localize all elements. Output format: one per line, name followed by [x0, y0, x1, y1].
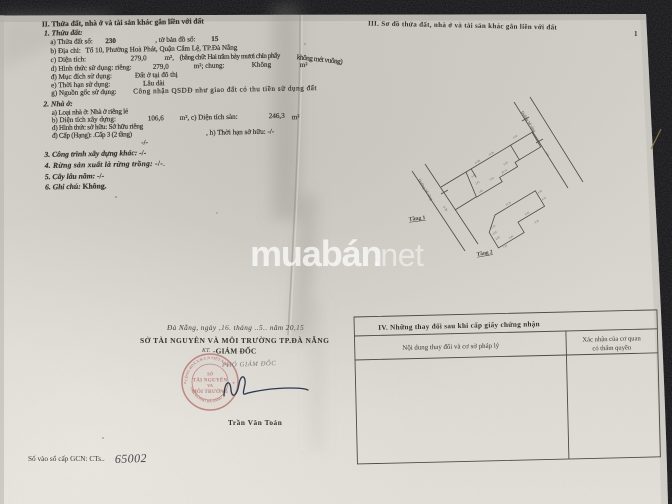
svg-text:-/-: -/-: [141, 138, 148, 146]
svg-text:1: 1: [634, 30, 638, 38]
svg-text:5. Cây lâu năm: -/-: 5. Cây lâu năm: -/-: [45, 171, 105, 181]
svg-text:SỞ: SỞ: [207, 372, 213, 377]
svg-text:Trần Văn Toán: Trần Văn Toán: [228, 418, 282, 427]
svg-text:Số vào sổ cấp GCN: CTs..: Số vào sổ cấp GCN: CTs..: [28, 454, 105, 463]
svg-text:MÔI TRƯỜNG: MÔI TRƯỜNG: [192, 389, 228, 395]
svg-text:6. Ghi chú: Không.: 6. Ghi chú: Không.: [45, 181, 107, 191]
svg-text:2. Nhà ở:: 2. Nhà ở:: [42, 99, 72, 109]
svg-text:Đà Nẵng, ngày ,16. tháng ..5..: Đà Nẵng, ngày ,16. tháng ..5.. năm 20,15: [166, 323, 304, 332]
svg-text:muabán: muabán: [250, 233, 381, 274]
svg-text:.net: .net: [372, 237, 424, 273]
svg-text:-GIÁM ĐỐC: -GIÁM ĐỐC: [213, 346, 256, 356]
svg-text:có thẩm quyền: có thẩm quyền: [592, 344, 632, 352]
svg-text:Xác nhận của cơ quan: Xác nhận của cơ quan: [582, 335, 641, 343]
svg-text:SỞ TÀI NGUYÊN VÀ MÔI TRƯỜNG T: SỞ TÀI NGUYÊN VÀ MÔI TRƯỜNG TP.ĐÀ NẴNG: [140, 335, 329, 345]
svg-text:65002: 65002: [115, 451, 147, 466]
svg-text:1. Thửa đất:: 1. Thửa đất:: [44, 28, 83, 38]
svg-text:KT.: KT.: [201, 348, 210, 354]
svg-text:VA: VA: [207, 383, 214, 388]
